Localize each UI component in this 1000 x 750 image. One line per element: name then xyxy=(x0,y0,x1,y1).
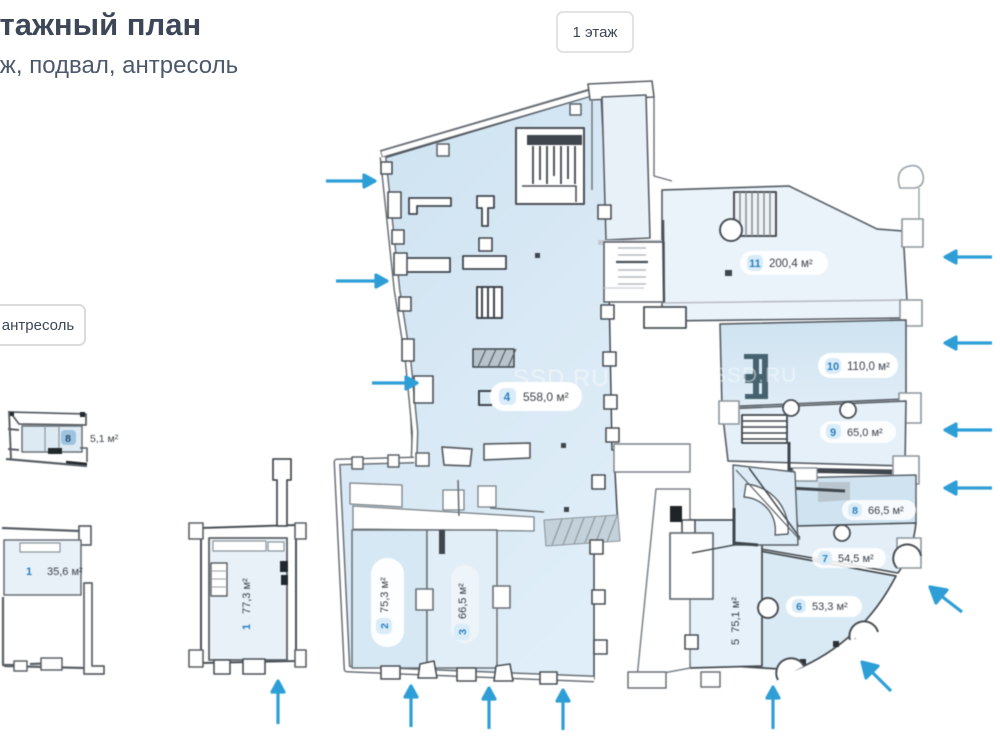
svg-text:200,4 м²: 200,4 м² xyxy=(769,258,813,270)
svg-text:2: 2 xyxy=(379,623,391,629)
svg-text:1: 1 xyxy=(26,566,32,578)
svg-text:8: 8 xyxy=(65,433,71,445)
svg-text:558,0 м²: 558,0 м² xyxy=(523,390,569,404)
svg-text:SSD.RU: SSD.RU xyxy=(712,364,797,387)
svg-text:5,1 м²: 5,1 м² xyxy=(90,433,119,445)
svg-text:7: 7 xyxy=(822,553,828,565)
svg-text:6: 6 xyxy=(796,601,802,613)
svg-text:3: 3 xyxy=(457,629,469,635)
svg-text:66,5 м²: 66,5 м² xyxy=(868,505,904,517)
svg-text:77,3 м²: 77,3 м² xyxy=(241,578,253,614)
svg-text:66,5 м²: 66,5 м² xyxy=(457,583,469,619)
svg-text:35,6 м²: 35,6 м² xyxy=(47,566,83,578)
svg-text:11: 11 xyxy=(749,258,761,270)
svg-text:1: 1 xyxy=(241,624,253,630)
svg-text:65,0 м²: 65,0 м² xyxy=(847,427,883,439)
svg-text:8: 8 xyxy=(852,505,858,517)
svg-text:9: 9 xyxy=(830,427,836,439)
svg-text:75,3 м²: 75,3 м² xyxy=(379,577,391,613)
svg-text:53,3 м²: 53,3 м² xyxy=(812,601,848,613)
svg-text:110,0 м²: 110,0 м² xyxy=(847,361,890,373)
svg-text:5 75,1 м²: 5 75,1 м² xyxy=(730,597,742,645)
svg-text:54,5 м²: 54,5 м² xyxy=(838,553,874,565)
svg-text:10: 10 xyxy=(827,361,839,373)
svg-text:4: 4 xyxy=(504,392,511,404)
